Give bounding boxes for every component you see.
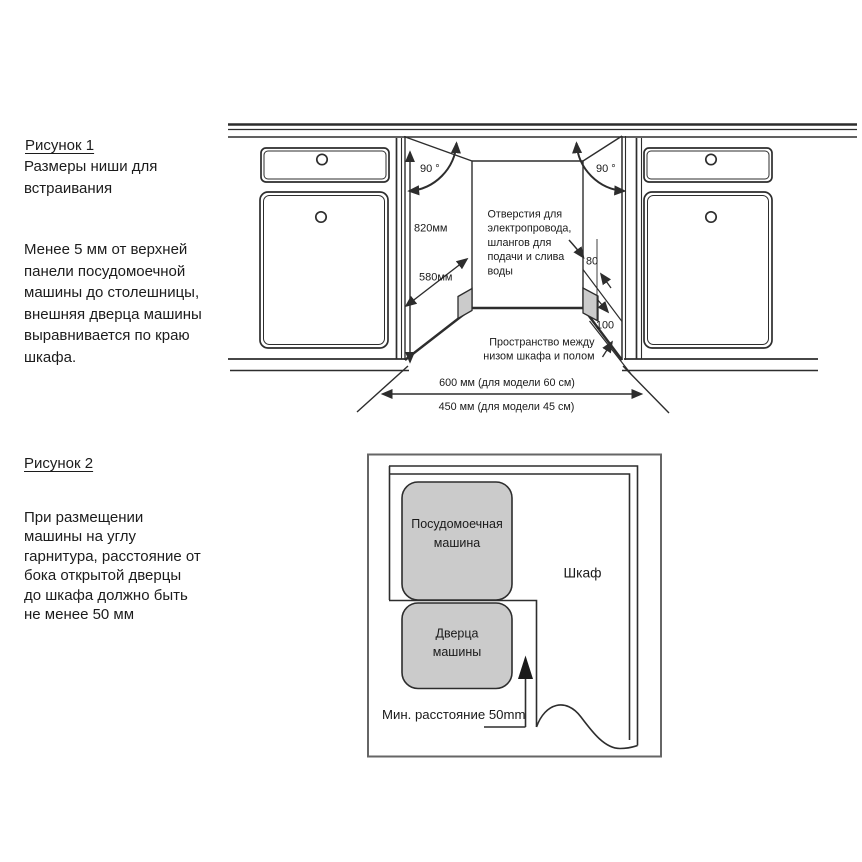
- svg-text:электропровода,: электропровода,: [488, 223, 572, 235]
- label-dim-600: 600 мм (для модели 60 см): [439, 377, 575, 389]
- figure1-title: Рисунок 1: [25, 137, 94, 154]
- label-angle-left: 90 °: [420, 163, 440, 175]
- svg-text:шлангов для: шлангов для: [488, 237, 552, 249]
- left-door-knob: [316, 212, 326, 222]
- left-cabinet: [260, 138, 402, 360]
- countertop: [228, 125, 857, 138]
- label-dim-580: 580мм: [419, 272, 452, 284]
- label-dim-100: 100: [596, 320, 614, 332]
- label-floor-gap: Пространство между низом шкафа и полом: [483, 337, 595, 363]
- right-wall-hole: [583, 288, 598, 321]
- label-holes-note: Отверстия для электропровода, шлангов дл…: [488, 209, 572, 278]
- svg-text:Пространство между: Пространство между: [489, 337, 595, 349]
- right-drawer-knob: [706, 154, 716, 164]
- svg-text:Отверстия для: Отверстия для: [488, 209, 563, 221]
- figure1-subtitle-line1: Размеры ниши для: [24, 156, 157, 178]
- figure1-subtitle-line2: встраивания: [24, 178, 157, 200]
- svg-text:низом шкафа и полом: низом шкафа и полом: [483, 351, 594, 363]
- svg-text:Посудомоечная: Посудомоечная: [411, 517, 503, 531]
- label-dim-450: 450 мм (для модели 45 см): [439, 401, 575, 413]
- figure1-subtitle: Размеры ниши для встраивания: [24, 156, 157, 199]
- figure1-caption: Менее 5 мм от верхней панели посудомоечн…: [24, 239, 202, 368]
- right-door-knob: [706, 212, 716, 222]
- label-dim-820: 820мм: [414, 223, 447, 235]
- label-cabinet: Шкаф: [563, 566, 601, 581]
- figure2-title: Рисунок 2: [24, 455, 93, 472]
- left-wall-hole: [458, 289, 472, 319]
- figure2-caption: При размещении машины на углу гарнитура,…: [24, 508, 201, 624]
- figure1-drawing: 90 ° 90 ° 820мм 580мм Отверстия для элек…: [225, 108, 860, 420]
- svg-text:Дверца: Дверца: [436, 627, 479, 641]
- floor-diagonal-left: [357, 366, 408, 412]
- svg-text:машина: машина: [434, 536, 480, 550]
- label-dim-80: 80: [586, 256, 598, 268]
- holes-pointer-arrow: [569, 240, 584, 258]
- right-cabinet: [637, 138, 773, 360]
- svg-text:машины: машины: [433, 645, 481, 659]
- label-angle-right: 90 °: [596, 163, 616, 175]
- cabinet-wavy-edge: [537, 705, 638, 749]
- left-drawer-knob: [317, 154, 327, 164]
- svg-text:подачи и слива: подачи и слива: [488, 251, 565, 263]
- figure2-drawing: Посудомоечная машина Дверца машины Шкаф …: [358, 445, 670, 767]
- label-min-distance: Мин. расстояние 50mm: [382, 707, 525, 722]
- svg-text:воды: воды: [488, 265, 514, 277]
- arrow-head: [518, 656, 533, 680]
- manual-page: Рисунок 1 Размеры ниши для встраивания М…: [0, 0, 862, 862]
